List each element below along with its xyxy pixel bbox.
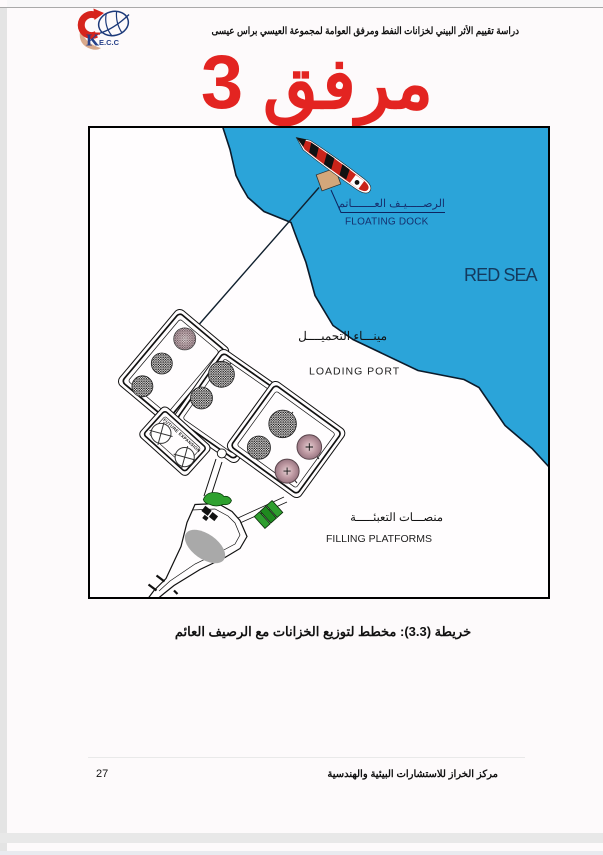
svg-text:FILLING PLATFORMS: FILLING PLATFORMS [326,533,432,545]
svg-text:LOADING PORT: LOADING PORT [309,366,400,378]
svg-text:RED SEA: RED SEA [464,265,538,285]
svg-text:FLOATING DOCK: FLOATING DOCK [345,217,429,228]
